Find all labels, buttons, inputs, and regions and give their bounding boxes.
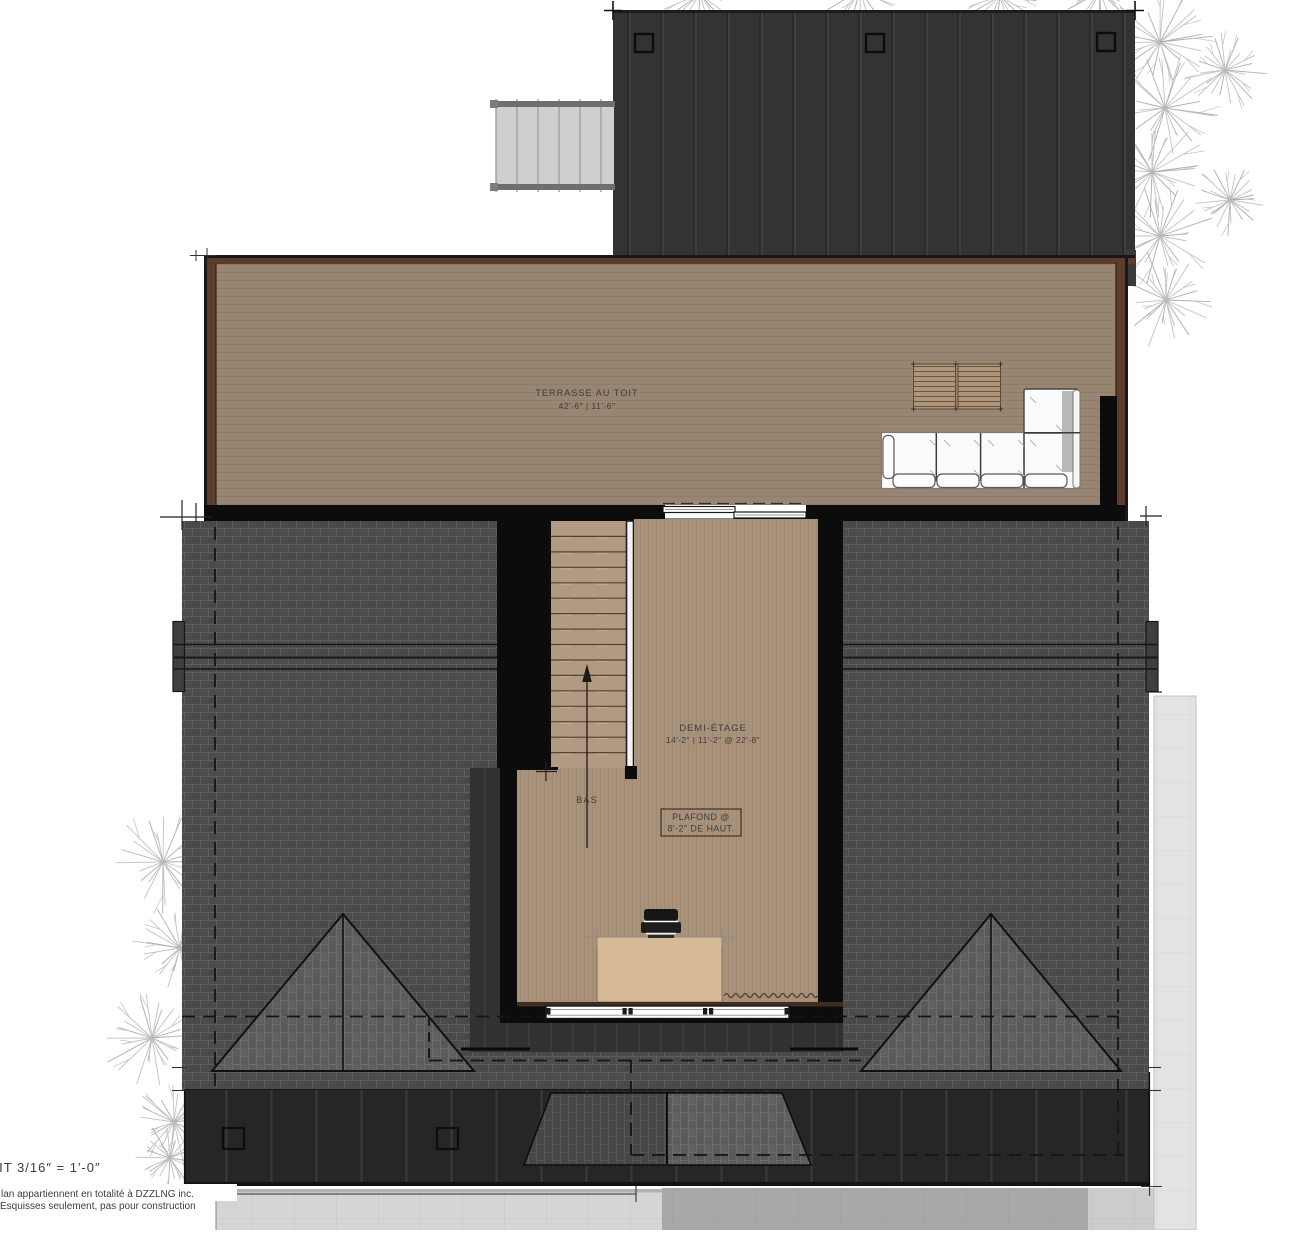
svg-text:42′-6″ | 11′-6″: 42′-6″ | 11′-6″	[558, 401, 615, 411]
svg-text:OIT 3/16″ = 1′-0″: OIT 3/16″ = 1′-0″	[0, 1160, 101, 1175]
svg-text:14′-2″ | 11′-2″ @ 22′-8″: 14′-2″ | 11′-2″ @ 22′-8″	[666, 735, 760, 745]
svg-text:lan appartiennent en totalité: lan appartiennent en totalité à DZZLNG i…	[1, 1189, 194, 1200]
svg-text:Esquisses seulement, pas pour: Esquisses seulement, pas pour constructi…	[0, 1201, 196, 1212]
svg-text:TERRASSE AU TOIT: TERRASSE AU TOIT	[535, 388, 638, 398]
svg-text:BAS: BAS	[576, 795, 598, 805]
svg-text:DEMI-ÉTAGE: DEMI-ÉTAGE	[679, 723, 746, 734]
svg-text:PLAFOND @: PLAFOND @	[672, 812, 729, 822]
svg-text:8′-2″ DE HAUT.: 8′-2″ DE HAUT.	[667, 824, 734, 834]
